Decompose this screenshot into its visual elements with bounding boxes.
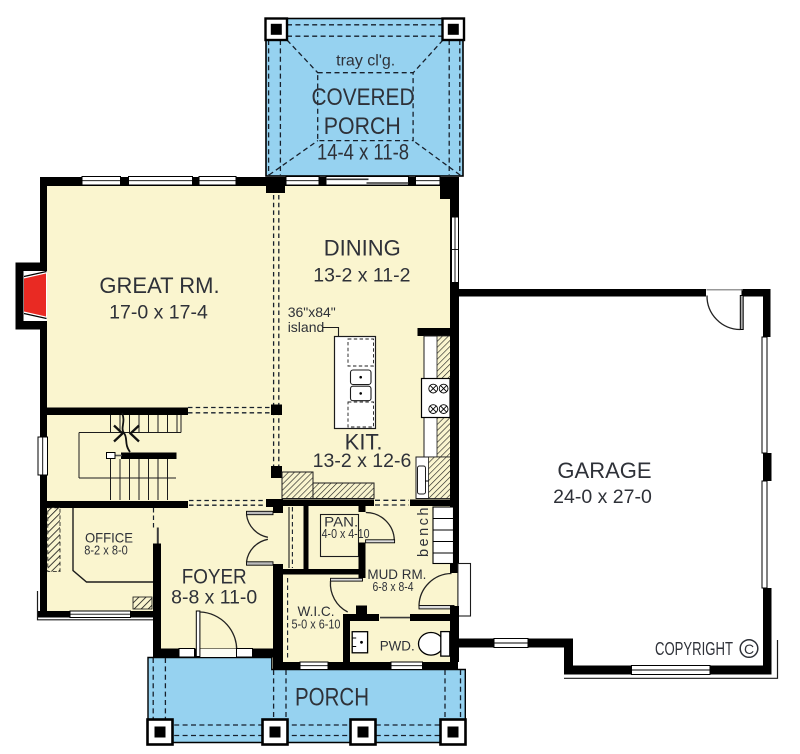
svg-text:COVERED: COVERED (312, 84, 415, 111)
svg-text:8-8 x 11-0: 8-8 x 11-0 (171, 587, 257, 608)
svg-text:COPYRIGHT: COPYRIGHT (655, 639, 733, 659)
svg-text:5-0 x 6-10: 5-0 x 6-10 (292, 617, 341, 632)
svg-text:14-4 x 11-8: 14-4 x 11-8 (317, 140, 409, 165)
svg-text:8-2 x 8-0: 8-2 x 8-0 (84, 543, 128, 558)
svg-text:FOYER: FOYER (182, 565, 247, 588)
svg-text:GREAT RM.: GREAT RM. (99, 273, 219, 298)
svg-text:tray cl'g.: tray cl'g. (336, 53, 395, 70)
svg-text:DINING: DINING (324, 236, 401, 261)
svg-text:PWD.: PWD. (380, 637, 415, 653)
svg-text:13-2 x 12-6: 13-2 x 12-6 (313, 450, 412, 472)
svg-text:13-2 x 11-2: 13-2 x 11-2 (313, 265, 410, 287)
svg-text:PORCH: PORCH (295, 684, 369, 712)
svg-text:36"x84": 36"x84" (288, 304, 336, 320)
svg-text:island: island (288, 319, 325, 335)
svg-text:GARAGE: GARAGE (557, 458, 651, 483)
svg-text:24-0 x 27-0: 24-0 x 27-0 (553, 486, 652, 508)
svg-text:4-0 x 4-10: 4-0 x 4-10 (322, 526, 370, 541)
svg-text:bench: bench (416, 505, 432, 557)
svg-text:PORCH: PORCH (324, 113, 401, 140)
svg-text:17-0 x 17-4: 17-0 x 17-4 (109, 302, 208, 324)
svg-text:C: C (744, 641, 754, 657)
svg-text:6-8 x 8-4: 6-8 x 8-4 (373, 579, 414, 594)
